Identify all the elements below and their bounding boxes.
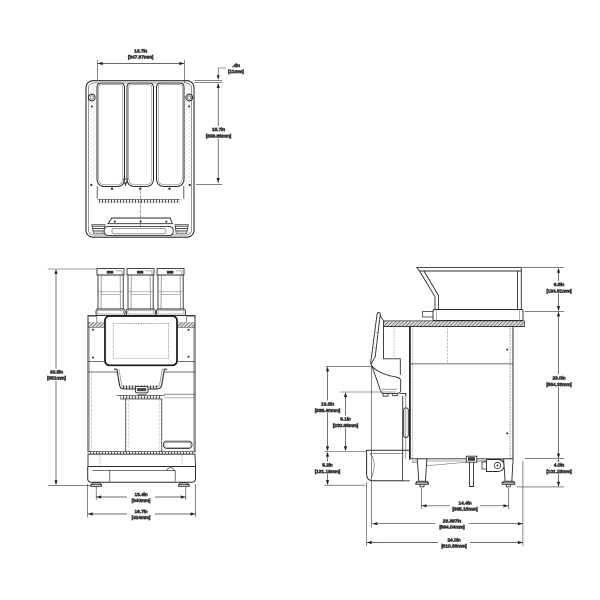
svg-text:13.3in: 13.3in [321,402,334,408]
svg-text:[594.04mm]: [594.04mm] [439,525,464,531]
svg-text:[399.86mm]: [399.86mm] [206,133,231,139]
svg-text:33.5in: 33.5in [50,370,63,376]
svg-text:[11mm]: [11mm] [228,69,244,75]
svg-text:23.387in: 23.387in [443,519,462,525]
svg-text:15.7in: 15.7in [212,127,225,133]
svg-text:6.5in: 6.5in [554,282,565,288]
svg-text:[230.65mm]: [230.65mm] [333,423,358,429]
svg-text:9.1in: 9.1in [340,417,351,423]
svg-text:[610.36mm]: [610.36mm] [441,543,466,549]
svg-text:[584.33mm]: [584.33mm] [546,382,571,388]
svg-text:4.0in: 4.0in [554,463,565,469]
svg-text:[338.40mm]: [338.40mm] [315,408,340,414]
svg-text:[101.23mm]: [101.23mm] [546,469,571,475]
svg-text:[340mm]: [340mm] [132,498,151,504]
svg-text:14.4in: 14.4in [458,501,471,507]
svg-text:[851mm]: [851mm] [47,376,66,382]
svg-text:[424mm]: [424mm] [132,515,151,521]
svg-text:13.4in: 13.4in [134,492,147,498]
svg-text:13.7in: 13.7in [134,49,147,55]
svg-text:16.7in: 16.7in [134,509,147,515]
svg-text:[365.15mm]: [365.15mm] [452,507,477,513]
svg-text:.4in: .4in [232,63,240,69]
svg-text:[164.81mm]: [164.81mm] [546,288,571,294]
svg-text:[347.87mm]: [347.87mm] [128,55,153,61]
svg-text:24.0in: 24.0in [447,537,460,543]
svg-text:23.0in: 23.0in [552,376,565,382]
svg-text:[131.19mm]: [131.19mm] [315,469,340,475]
svg-text:5.2in: 5.2in [322,463,333,469]
